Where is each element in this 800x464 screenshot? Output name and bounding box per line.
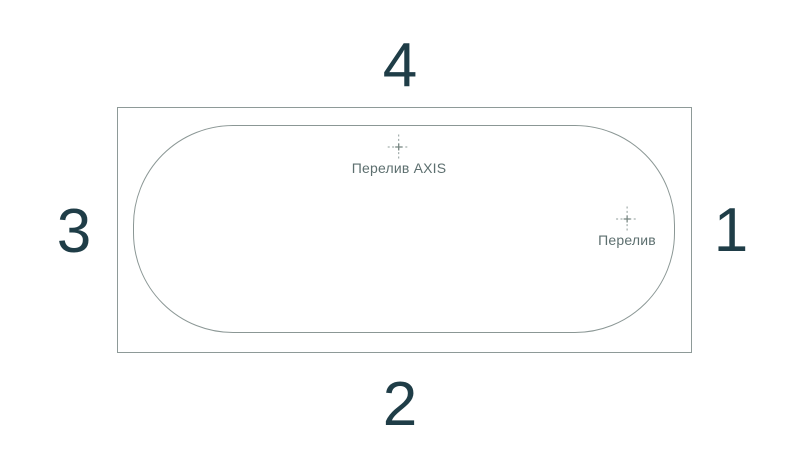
side-number-bottom: 2 <box>383 374 417 436</box>
bathtub-top-view-diagram: 4 2 3 1 Перелив AXIS Перелив <box>0 0 800 464</box>
crosshair-icon <box>386 134 412 160</box>
overflow-axis-marker: Перелив AXIS <box>352 134 447 176</box>
overflow-axis-label: Перелив AXIS <box>352 161 447 176</box>
crosshair-icon <box>614 206 640 232</box>
side-number-right: 1 <box>714 200 748 262</box>
overflow-marker: Перелив <box>598 206 656 248</box>
side-number-top: 4 <box>383 35 417 97</box>
side-number-left: 3 <box>57 201 91 263</box>
overflow-label: Перелив <box>598 233 656 248</box>
